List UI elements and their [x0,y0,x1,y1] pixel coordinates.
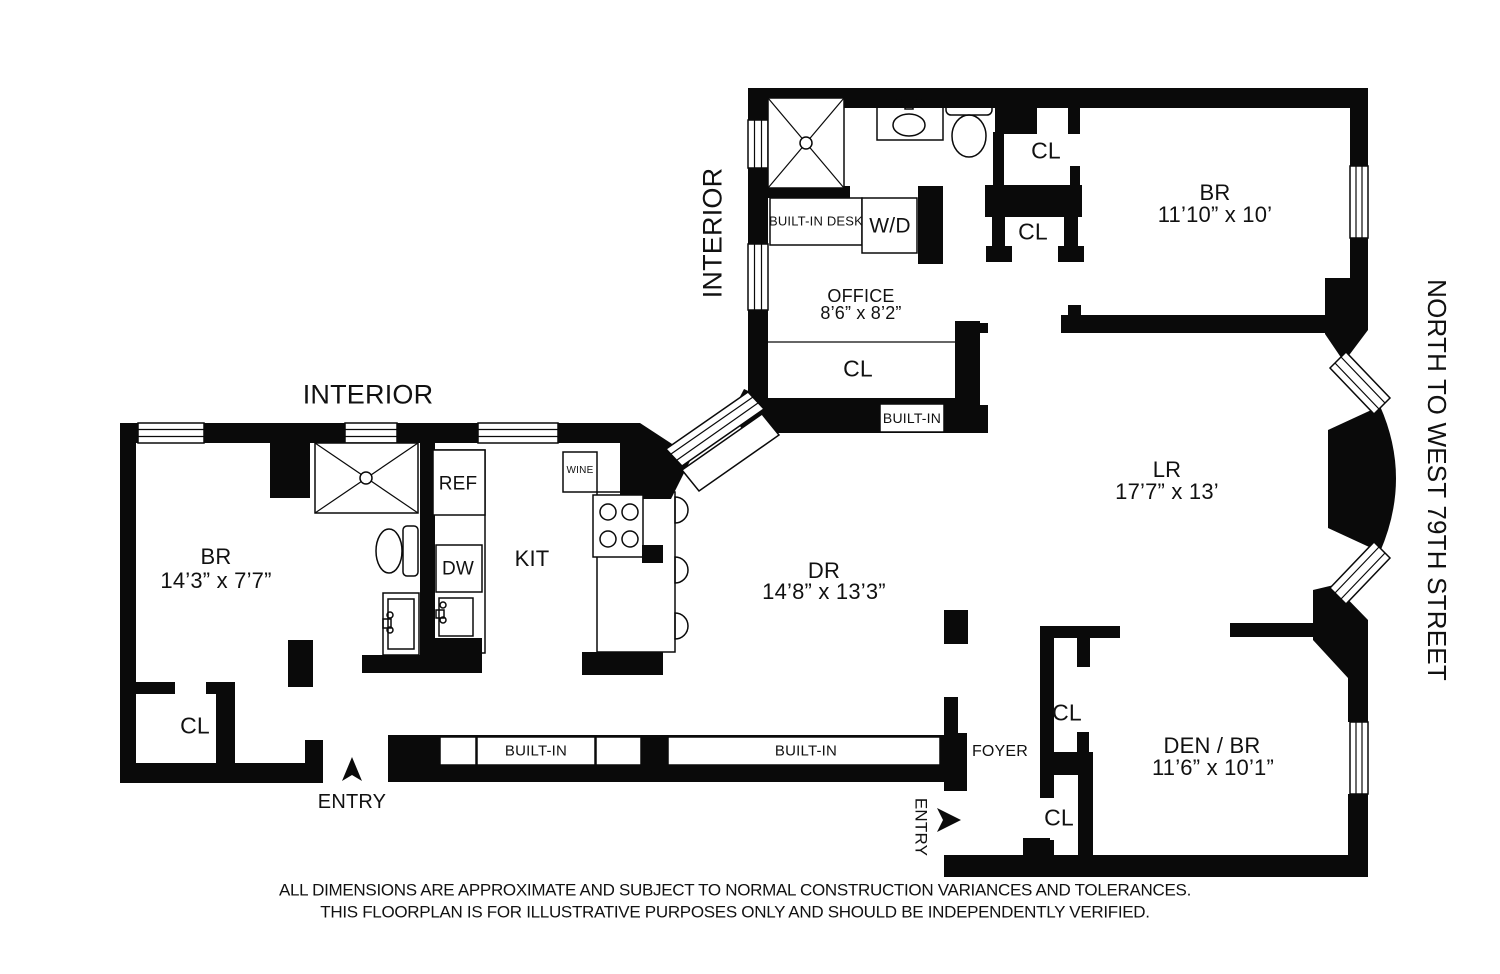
closet-label-foyer: CL [1044,807,1074,830]
built-in-office-label: BUILT-IN [883,411,941,425]
room-dims-office: 8’6” x 8’2” [820,304,901,322]
wine-cooler-label: WINE [567,466,594,476]
entry-arrow-icon [937,808,961,832]
shower-icon [768,98,844,188]
built-in-cabinet [440,737,476,765]
built-in-cabinet [596,737,641,765]
window-icon [748,120,768,168]
room-dims-living-room: 17’7” x 13’ [1115,481,1219,503]
sink-icon [383,593,419,655]
washer-dryer-label: W/D [869,216,910,237]
dishwasher-label: DW [442,560,474,579]
floorplan-drawing [0,0,1500,974]
room-label-bedroom-left: BR [201,546,232,568]
entry-arrow-icon [342,757,362,781]
interior-left-label: INTERIOR [700,168,727,299]
room-label-kitchen: KIT [515,548,550,570]
built-in-gallery-right-label: BUILT-IN [775,744,837,759]
refrigerator-label: REF [439,475,478,494]
floorplan: INTERIOR INTERIOR NORTH TO WEST 79TH STR… [0,0,1500,974]
toilet-icon [376,526,418,576]
entry-main-label: ENTRY [318,792,386,812]
sink-icon [436,598,473,636]
built-in-gallery-left-label: BUILT-IN [505,744,567,759]
window-icon [1350,722,1368,794]
bar-stool-icon [675,613,688,639]
bar-stool-icon [675,497,688,523]
room-dims-bedroom-top: 11’10” x 10’ [1158,204,1273,226]
closet-label-hall-upper: CL [1031,140,1061,163]
room-label-bedroom-top: BR [1200,182,1231,204]
entry-service-label: ENTRY [913,798,930,856]
bar-stool-icon [675,557,688,583]
window-icon [748,244,768,310]
disclaimer-line1: ALL DIMENSIONS ARE APPROXIMATE AND SUBJE… [279,882,1191,899]
window-icon [1350,166,1368,238]
closet-label-bedroom-left: CL [180,715,210,738]
window-icon [345,423,397,443]
stove-icon [593,495,643,557]
closet-label-den: CL [1052,702,1082,725]
street-label: NORTH TO WEST 79TH STREET [1424,279,1450,681]
closet-label-office: CL [843,358,873,381]
interior-top-label: INTERIOR [303,382,434,409]
shower-icon [315,443,418,513]
room-dims-bedroom-left: 14’3” x 7’7” [160,570,271,592]
window-icon [138,423,204,443]
room-dims-dining-room: 14’8” x 13’3” [762,581,886,603]
disclaimer-line2: THIS FLOORPLAN IS FOR ILLUSTRATIVE PURPO… [320,904,1149,921]
window-icon [1330,542,1390,604]
room-label-living-room: LR [1153,459,1182,481]
window-icon [1330,352,1390,414]
room-label-den: DEN / BR [1164,735,1261,757]
room-label-foyer: FOYER [972,744,1028,760]
room-dims-den: 11’6” x 10’1” [1152,757,1274,779]
window-icon [478,423,558,443]
closet-label-hall-lower: CL [1018,221,1048,244]
built-in-desk-label: BUILT-IN DESK [769,215,863,228]
bay-window-pier [1328,406,1396,552]
